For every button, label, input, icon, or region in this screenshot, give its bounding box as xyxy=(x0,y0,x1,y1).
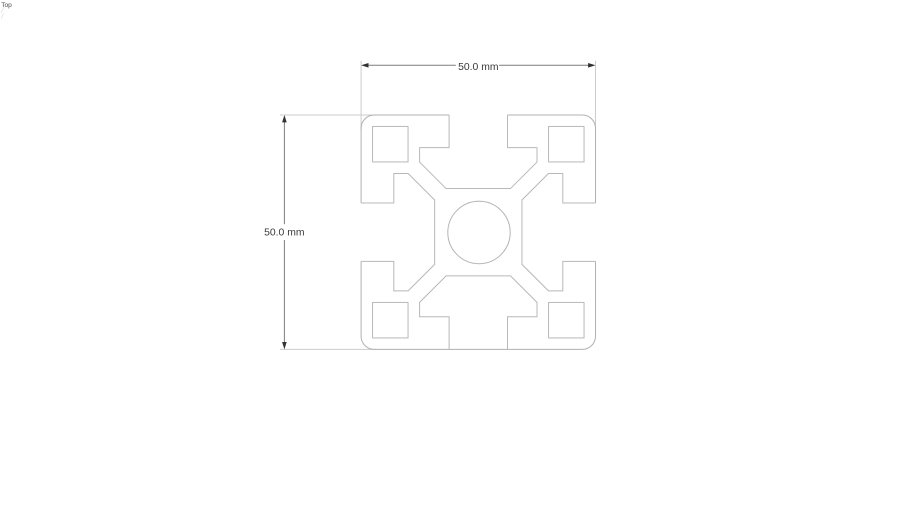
svg-text:50.0 mm: 50.0 mm xyxy=(458,62,498,73)
svg-text:Top: Top xyxy=(1,2,12,9)
svg-text:50.0 mm: 50.0 mm xyxy=(264,228,304,239)
